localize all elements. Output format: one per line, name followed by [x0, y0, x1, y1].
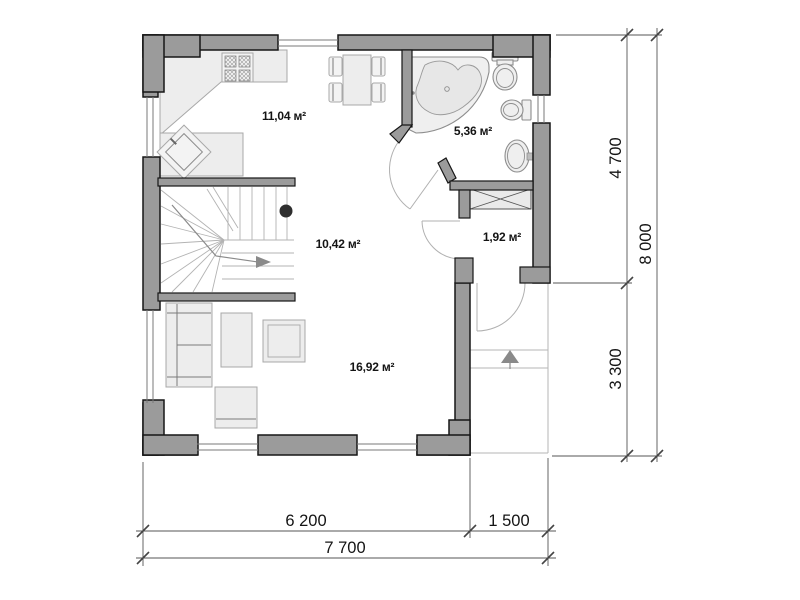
- room-label-living: 16,92 м²: [350, 360, 395, 374]
- window-bottom-left: [197, 444, 258, 450]
- floor-plan-drawing: 11,04 м² 5,36 м² 10,42 м² 1,92 м² 16,92 …: [0, 0, 800, 600]
- dim-right-lower: 3 300: [607, 348, 625, 389]
- entry-porch: [470, 283, 548, 453]
- dim-bottom-house: 6 200: [285, 512, 326, 530]
- sofa: [166, 303, 212, 387]
- dim-right-total: 8 000: [637, 223, 655, 264]
- entry-door: [477, 283, 525, 331]
- stair-wall-bottom: [158, 293, 295, 301]
- dining-table: [329, 55, 385, 105]
- stair-wall-top: [158, 178, 295, 186]
- entry-direction-arrow: [501, 350, 519, 363]
- bathroom-door: [390, 141, 438, 209]
- door-jamb-angled: [438, 158, 456, 183]
- window-left-lower: [147, 310, 153, 403]
- floor-plan-page: 11,04 м² 5,36 м² 10,42 м² 1,92 м² 16,92 …: [0, 0, 800, 600]
- window-top: [278, 40, 338, 46]
- stairs: [161, 187, 294, 292]
- stove: [222, 53, 253, 82]
- closet-wall-top: [450, 181, 533, 190]
- room-label-bathroom: 5,36 м²: [454, 124, 492, 138]
- bathtub: [408, 57, 489, 133]
- bathroom-wall-angled: [390, 125, 412, 143]
- armchair-bottom: [215, 387, 257, 428]
- armchair-right: [263, 320, 305, 362]
- dim-bottom-porch: 1 500: [488, 512, 529, 530]
- room-label-kitchen: 11,04 м²: [262, 109, 306, 123]
- bathroom-wall: [402, 50, 412, 127]
- dim-right-upper: 4 700: [607, 137, 625, 178]
- wall-bidet: [501, 100, 531, 120]
- dim-bottom-total: 7 700: [324, 539, 365, 557]
- room-label-closet: 1,92 м²: [483, 230, 521, 244]
- stair-newel-post: [280, 205, 293, 218]
- closet-wall-left: [459, 190, 470, 218]
- closet-wall-stub: [455, 258, 473, 283]
- window-right: [538, 95, 544, 123]
- window-left-upper: [147, 97, 153, 157]
- entry-wall: [520, 267, 550, 283]
- coffee-table: [221, 313, 252, 367]
- window-bottom-right: [357, 444, 417, 450]
- room-label-hall: 10,42 м²: [316, 237, 361, 251]
- closet-door: [422, 221, 460, 259]
- wardrobe: [470, 189, 531, 209]
- washbasin: [505, 140, 533, 172]
